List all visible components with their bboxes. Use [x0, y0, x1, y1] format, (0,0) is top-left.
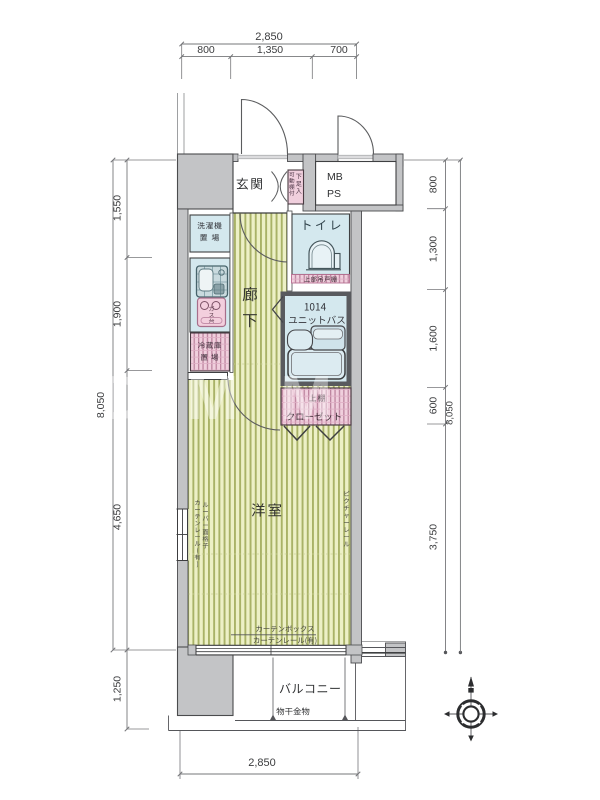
svg-text:1,900: 1,900 [112, 301, 124, 327]
svg-text:PS: PS [327, 188, 341, 200]
svg-text:2,850: 2,850 [248, 757, 276, 769]
svg-text:MB: MB [327, 171, 343, 183]
svg-text:1,300: 1,300 [428, 236, 440, 262]
svg-text:4,650: 4,650 [112, 504, 124, 530]
svg-text:8,050: 8,050 [445, 401, 456, 425]
svg-text:1,250: 1,250 [112, 676, 124, 702]
svg-text:2,850: 2,850 [255, 31, 283, 43]
svg-text:1,350: 1,350 [257, 44, 283, 56]
svg-text:1,600: 1,600 [428, 325, 440, 351]
svg-text:600: 600 [428, 397, 440, 415]
svg-text:3,750: 3,750 [428, 524, 440, 550]
svg-text:800: 800 [197, 44, 215, 56]
svg-text:DMM: DMM [100, 364, 374, 433]
svg-text:1,550: 1,550 [112, 195, 124, 221]
svg-text:700: 700 [330, 44, 348, 56]
svg-text:800: 800 [428, 176, 440, 194]
